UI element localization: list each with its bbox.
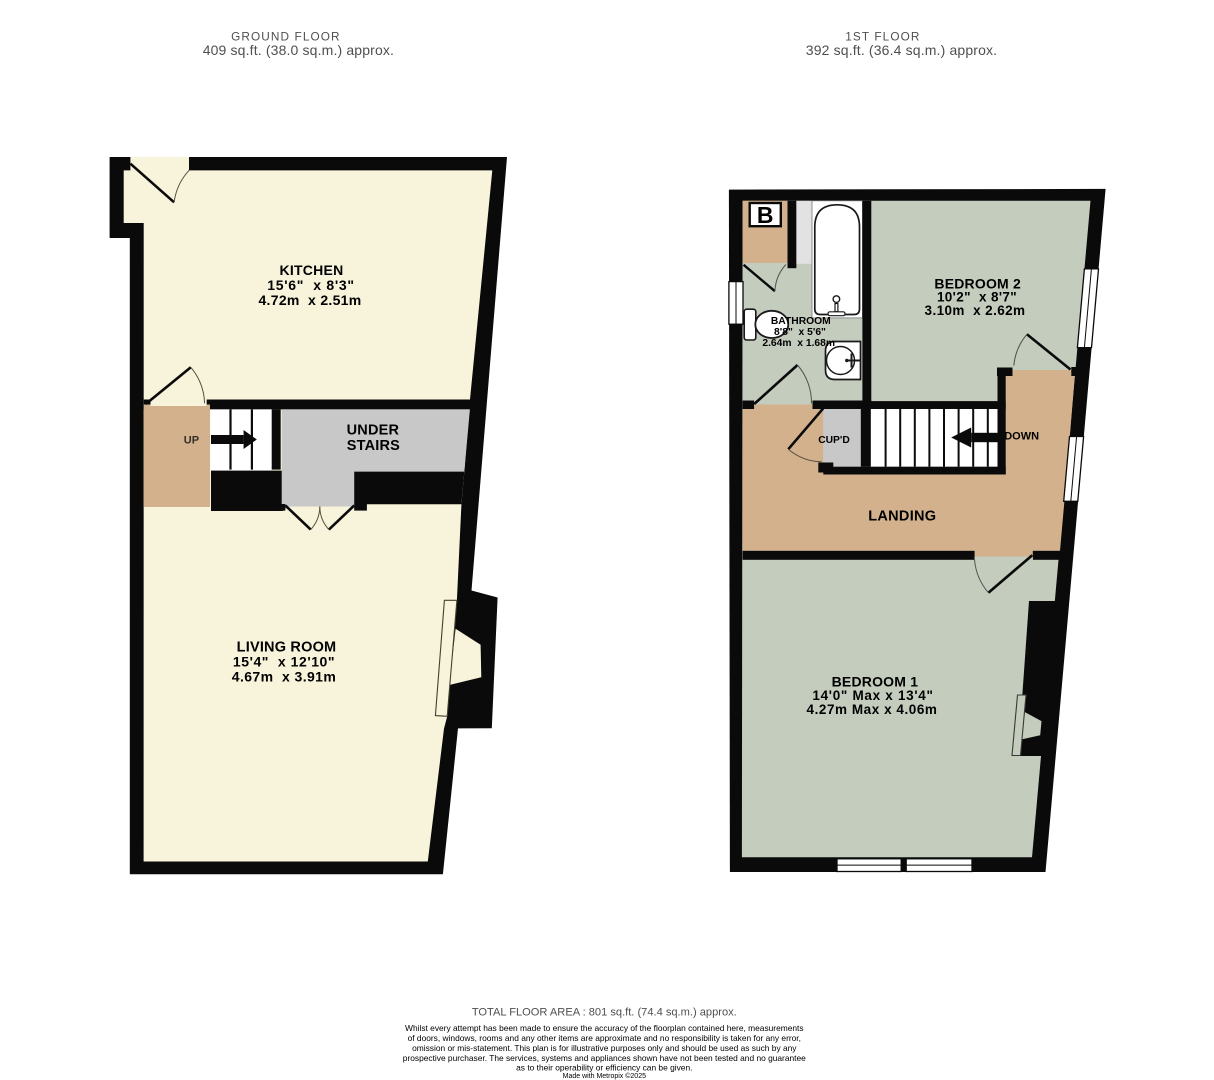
svg-text:Whilst every attempt has been: Whilst every attempt has been made to en… [405, 1023, 804, 1033]
svg-text:STAIRS: STAIRS [347, 438, 400, 454]
svg-text:UP: UP [184, 435, 199, 447]
svg-text:CUP'D: CUP'D [818, 435, 850, 446]
svg-text:4.72m x 2.51m: 4.72m x 2.51m [258, 292, 361, 308]
svg-text:15'6" x 8'3": 15'6" x 8'3" [267, 277, 354, 293]
svg-text:4.67m x 3.91m: 4.67m x 3.91m [232, 669, 336, 685]
svg-text:TOTAL FLOOR AREA : 801 sq.ft.: TOTAL FLOOR AREA : 801 sq.ft. (74.4 sq.m… [472, 1006, 737, 1018]
svg-text:Made with Metropix ©2025: Made with Metropix ©2025 [563, 1072, 646, 1080]
svg-text:LANDING: LANDING [868, 508, 936, 524]
svg-text:392 sq.ft. (36.4 sq.m.) approx: 392 sq.ft. (36.4 sq.m.) approx. [806, 42, 997, 58]
svg-text:3.10m x 2.62m: 3.10m x 2.62m [925, 303, 1026, 318]
svg-text:14'0" Max x 13'4": 14'0" Max x 13'4" [812, 688, 933, 703]
svg-text:KITCHEN: KITCHEN [280, 262, 344, 278]
svg-text:8'8" x 5'6": 8'8" x 5'6" [774, 327, 826, 338]
svg-text:2.64m x 1.68m: 2.64m x 1.68m [762, 338, 835, 349]
svg-text:4.27m Max x 4.06m: 4.27m Max x 4.06m [807, 702, 938, 717]
svg-text:UNDER: UNDER [347, 423, 400, 439]
svg-text:as to their operability or eff: as to their operability or efficiency ca… [516, 1062, 692, 1072]
svg-text:409 sq.ft. (38.0 sq.m.) approx: 409 sq.ft. (38.0 sq.m.) approx. [203, 42, 394, 58]
svg-text:omission or mis-statement. Thi: omission or mis-statement. This plan is … [412, 1043, 797, 1053]
svg-text:DOWN: DOWN [1004, 430, 1039, 442]
svg-text:BATHROOM: BATHROOM [771, 316, 831, 327]
svg-text:of doors, windows, rooms and a: of doors, windows, rooms and any other i… [408, 1033, 801, 1043]
svg-text:B: B [757, 202, 774, 228]
svg-text:15'4" x 12'10": 15'4" x 12'10" [233, 654, 335, 670]
